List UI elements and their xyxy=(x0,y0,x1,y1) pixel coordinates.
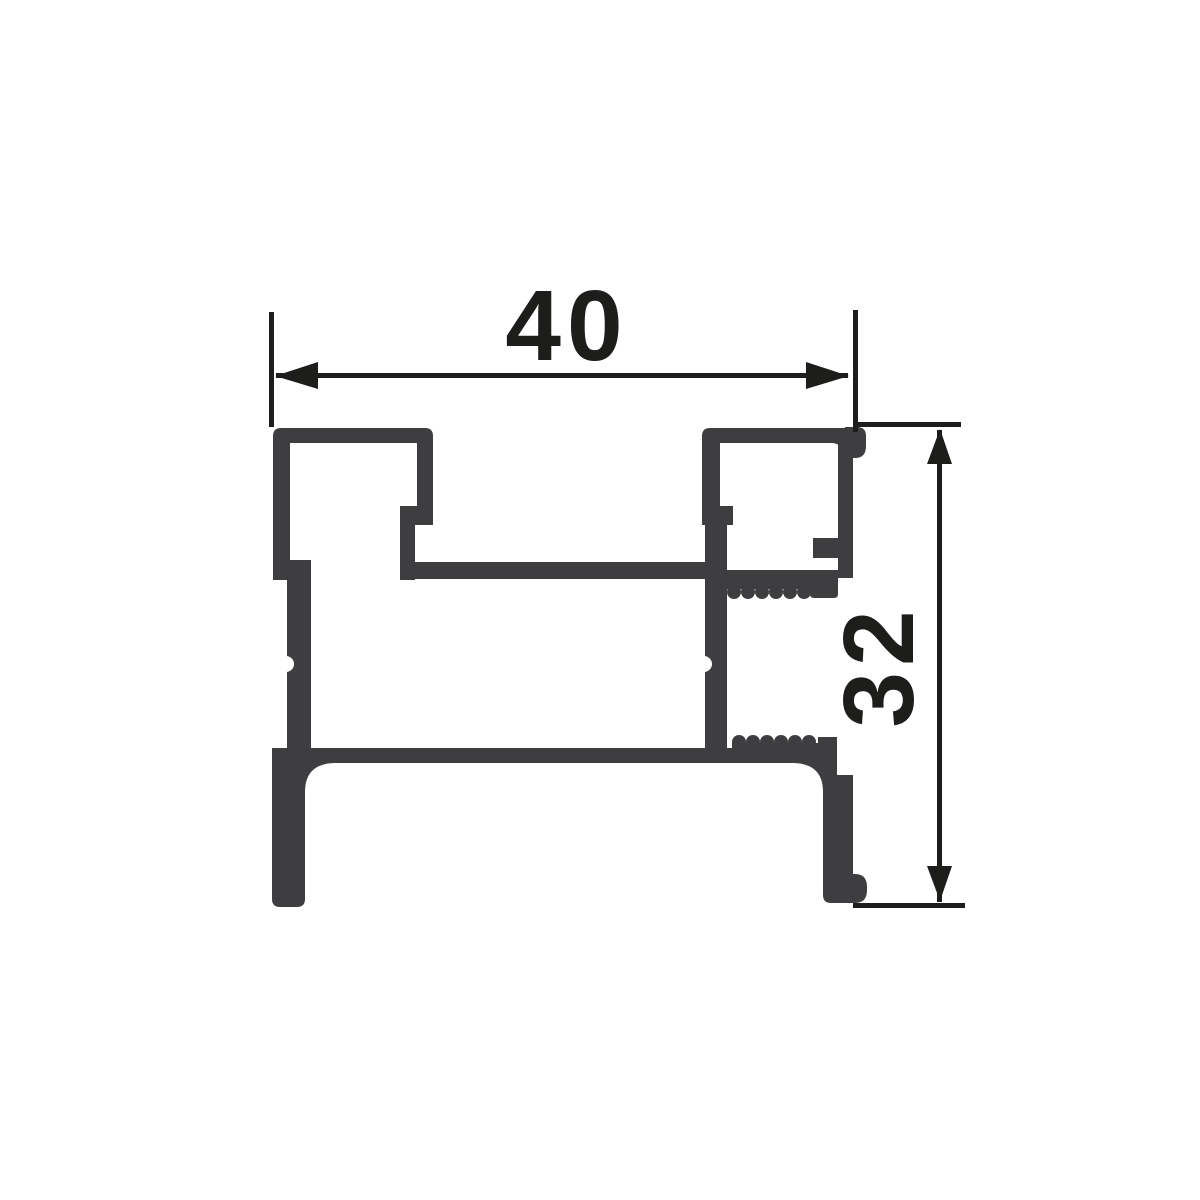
profile-top-flange-right xyxy=(702,428,857,443)
width-extension-line-left xyxy=(269,312,274,427)
profile-top-flange-left xyxy=(273,428,433,443)
height-dimension-line xyxy=(937,430,942,902)
height-extension-line-bottom xyxy=(853,903,965,908)
profile-left-outer-wall xyxy=(273,440,290,560)
notch-left-web xyxy=(278,656,294,672)
profile-left-foot xyxy=(272,748,305,907)
profile-left-hook xyxy=(400,506,433,525)
height-dimension-label: 32 xyxy=(823,604,935,727)
profile-screw-channel-lip xyxy=(810,584,838,598)
profile-screw-channel-wall xyxy=(705,523,727,750)
profile-right-hook xyxy=(702,506,733,525)
technical-drawing-canvas: 40 32 xyxy=(0,0,1200,1200)
height-extension-line-top xyxy=(853,422,961,427)
profile-right-outer-wall xyxy=(838,440,853,540)
profile-left-step xyxy=(273,560,311,580)
notch-screw-channel-wall xyxy=(696,656,712,672)
width-extension-line-right xyxy=(853,310,858,432)
technical-drawing: 40 32 xyxy=(0,0,1200,1200)
width-dimension-label: 40 xyxy=(505,270,628,382)
profile-right-outer-hook xyxy=(813,538,853,558)
profile-base xyxy=(272,748,837,763)
profile-right-channel-left-wall xyxy=(702,440,720,508)
drawing-background xyxy=(0,0,1200,1200)
profile-middle-wall xyxy=(400,562,727,579)
profile-base-right-block xyxy=(818,737,837,764)
profile-right-outer-wall-lower xyxy=(838,556,853,578)
profile-right-foot-lobe xyxy=(847,874,867,903)
